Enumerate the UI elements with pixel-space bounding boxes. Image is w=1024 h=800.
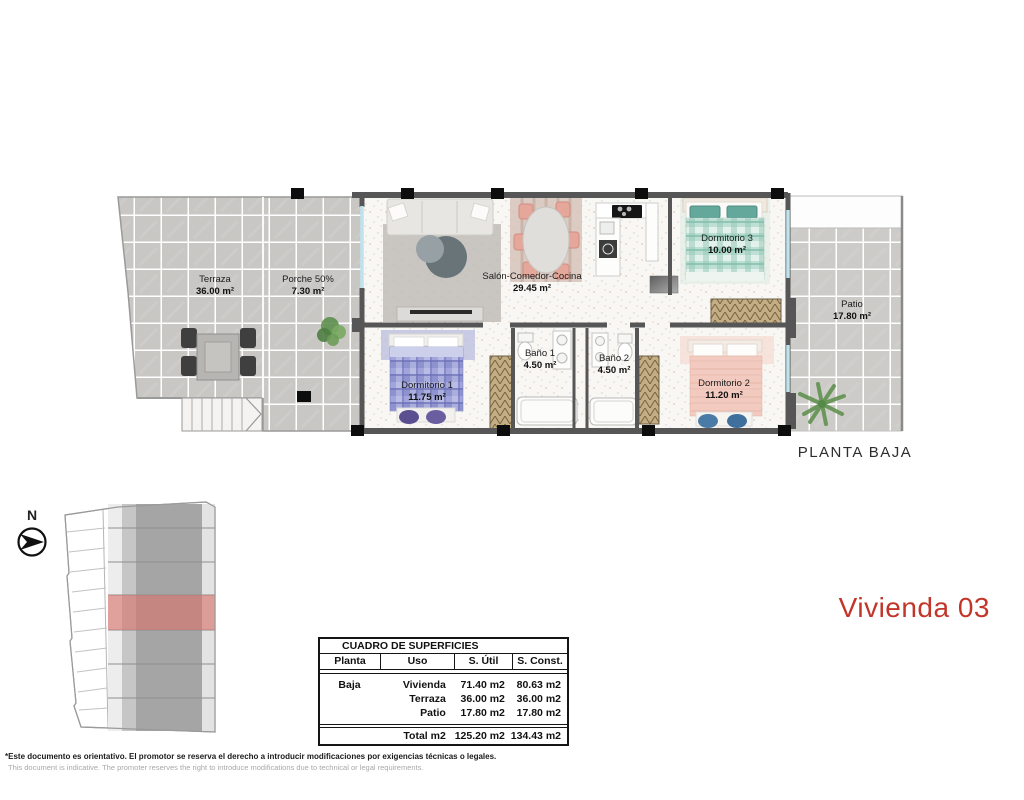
- cell-uso: Patio: [379, 706, 452, 720]
- col-header-uso: Uso: [380, 654, 454, 669]
- compass-icon: N: [19, 507, 46, 556]
- plan-title: PLANTA BAJA: [798, 444, 913, 461]
- total-label: Total m2: [379, 728, 452, 744]
- room-area-salon: 29.45 m²: [513, 283, 551, 294]
- col-header-const: S. Const.: [512, 654, 567, 669]
- col-header-util: S. Útil: [454, 654, 512, 669]
- wardrobe-bedroom2: [639, 356, 659, 424]
- living-room-furniture: [383, 199, 501, 322]
- room-area-patio: 17.80 m²: [833, 311, 871, 322]
- total-util: 125.20 m2: [452, 728, 509, 744]
- bedroom1-furniture: [381, 330, 475, 424]
- unit-highlight: [108, 595, 215, 630]
- unit-title: Vivienda 03: [839, 592, 990, 624]
- site-plan: N: [8, 498, 238, 748]
- room-area-bano2: 4.50 m²: [598, 365, 631, 376]
- room-area-bano1: 4.50 m²: [524, 360, 557, 371]
- wardrobe-bedroom1: [490, 356, 513, 429]
- room-label-terraza: Terraza: [199, 274, 231, 285]
- cell-const: 36.00 m2: [509, 692, 567, 706]
- room-label-porche: Porche 50%: [282, 274, 334, 285]
- room-area-dormitorio1: 11.75 m²: [408, 392, 446, 403]
- room-label-bano2: Baño 2: [599, 353, 629, 364]
- table-row: Patio 17.80 m2 17.80 m2: [320, 706, 567, 720]
- surfaces-table-total: Total m2 125.20 m2 134.43 m2: [320, 728, 567, 744]
- cell-planta: Baja: [320, 678, 379, 692]
- cell-const: 17.80 m2: [509, 706, 567, 720]
- cell-uso: Vivienda: [379, 678, 452, 692]
- compass-n-label: N: [27, 507, 37, 523]
- room-label-salon: Salón-Comedor-Cocina: [482, 271, 582, 282]
- table-row: Baja Vivienda 71.40 m2 80.63 m2: [320, 678, 567, 692]
- cell-util: 36.00 m2: [452, 692, 509, 706]
- total-const: 134.43 m2: [509, 728, 567, 744]
- room-area-dormitorio2: 11.20 m²: [705, 390, 743, 401]
- site-building: [65, 502, 215, 732]
- cell-const: 80.63 m2: [509, 678, 567, 692]
- room-area-porche: 7.30 m²: [292, 286, 325, 297]
- room-area-dormitorio3: 10.00 m²: [708, 245, 746, 256]
- dining-furniture: [510, 198, 582, 282]
- cell-uso: Terraza: [379, 692, 452, 706]
- surfaces-table-header: Planta Uso S. Útil S. Const.: [320, 654, 567, 670]
- surfaces-table-title: CUADRO DE SUPERFICIES: [320, 639, 567, 654]
- col-header-planta: Planta: [320, 654, 380, 669]
- cell-util: 17.80 m2: [452, 706, 509, 720]
- stairs: [182, 398, 262, 431]
- room-label-dormitorio2: Dormitorio 2: [698, 378, 750, 389]
- disclaimer-es: *Este documento es orientativo. El promo…: [5, 752, 496, 761]
- room-label-dormitorio1: Dormitorio 1: [401, 380, 453, 391]
- wardrobe-bedroom3: [711, 299, 781, 323]
- room-area-terraza: 36.00 m²: [196, 286, 234, 297]
- cell-util: 71.40 m2: [452, 678, 509, 692]
- surfaces-table-body: Baja Vivienda 71.40 m2 80.63 m2 Terraza …: [320, 674, 567, 725]
- floor-plan: Terraza 36.00 m² Porche 50% 7.30 m² Saló…: [0, 0, 1024, 480]
- page: Terraza 36.00 m² Porche 50% 7.30 m² Saló…: [0, 0, 1024, 800]
- room-label-dormitorio3: Dormitorio 3: [701, 233, 753, 244]
- room-label-bano1: Baño 1: [525, 348, 555, 359]
- disclaimer-en: This document is indicative. The promote…: [8, 763, 424, 772]
- surfaces-table: CUADRO DE SUPERFICIES Planta Uso S. Útil…: [318, 637, 569, 746]
- table-row: Terraza 36.00 m2 36.00 m2: [320, 692, 567, 706]
- room-label-patio: Patio: [841, 299, 863, 310]
- terrace-area: [118, 197, 362, 431]
